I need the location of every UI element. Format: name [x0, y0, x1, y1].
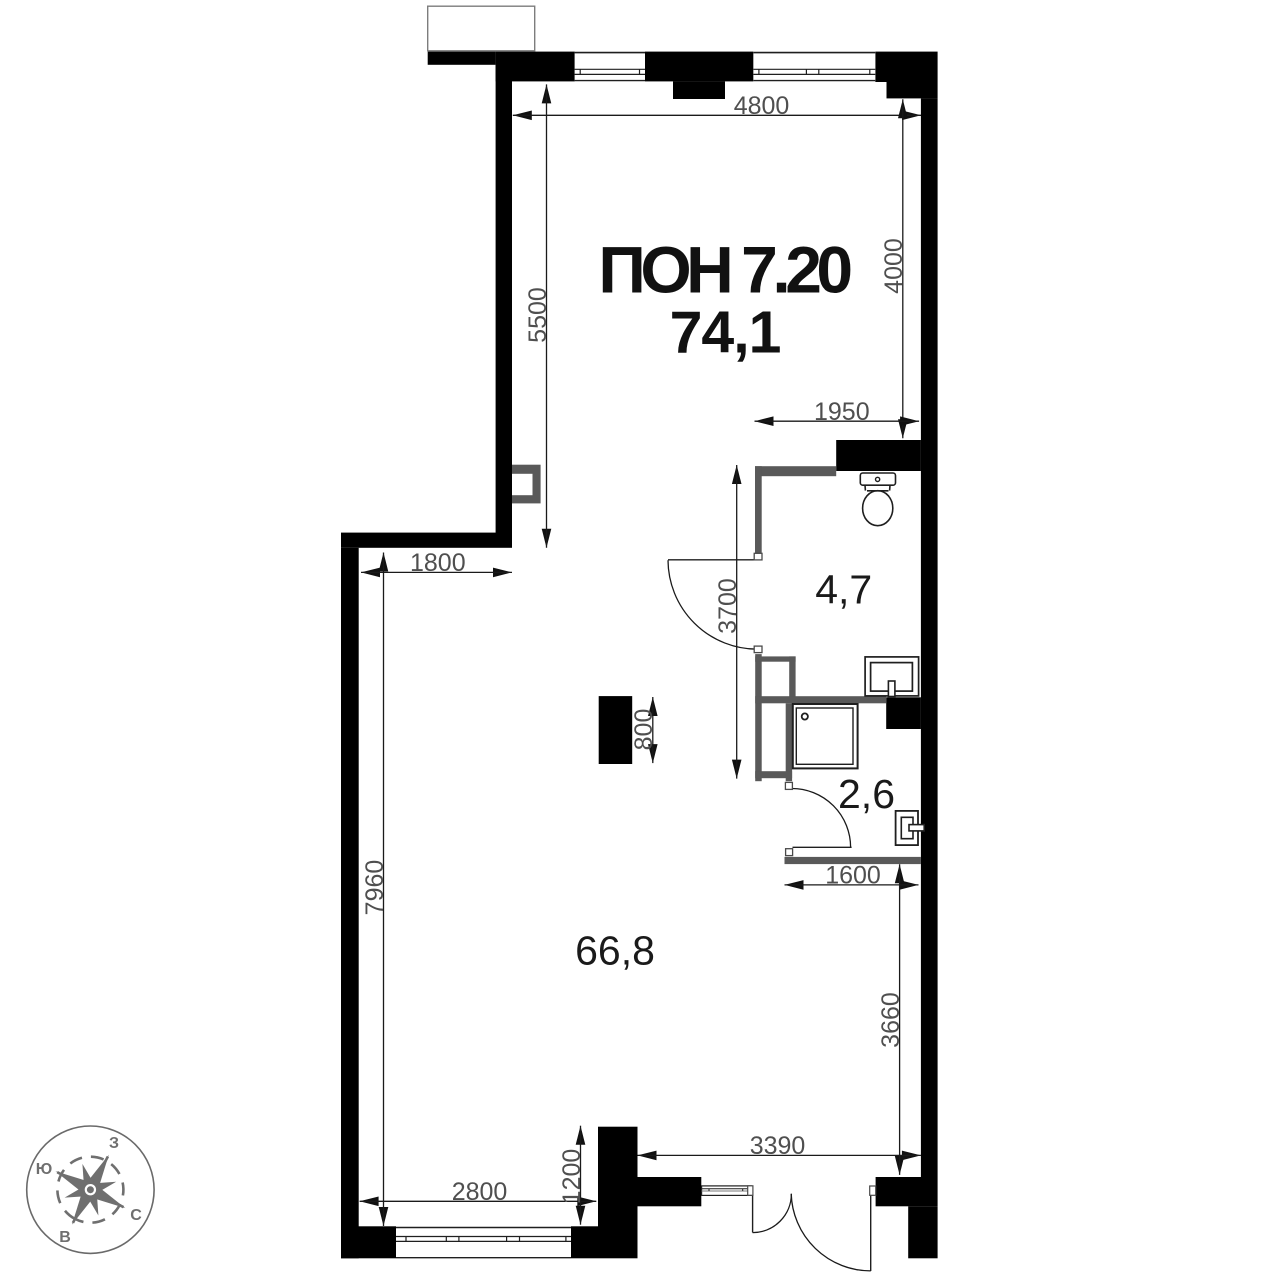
svg-text:3390: 3390 [750, 1132, 806, 1160]
svg-text:5500: 5500 [524, 287, 552, 343]
svg-text:4800: 4800 [734, 92, 790, 120]
svg-text:66,8: 66,8 [575, 928, 655, 974]
svg-text:74,1: 74,1 [670, 300, 781, 366]
svg-text:З: З [109, 1135, 119, 1152]
svg-text:В: В [59, 1229, 71, 1246]
svg-text:4000: 4000 [880, 238, 908, 294]
svg-text:2,6: 2,6 [838, 771, 895, 817]
svg-text:1200: 1200 [558, 1149, 586, 1205]
svg-text:3660: 3660 [877, 992, 905, 1048]
svg-text:ПОН 7.20: ПОН 7.20 [598, 233, 850, 307]
svg-text:1600: 1600 [825, 862, 881, 890]
svg-text:2800: 2800 [452, 1178, 508, 1206]
svg-text:Ю: Ю [36, 1161, 53, 1178]
svg-text:800: 800 [630, 709, 658, 751]
svg-text:7960: 7960 [361, 860, 389, 916]
svg-text:1800: 1800 [410, 549, 466, 577]
svg-text:1950: 1950 [814, 398, 870, 426]
svg-text:3700: 3700 [714, 578, 742, 634]
svg-text:4,7: 4,7 [815, 567, 872, 613]
svg-text:С: С [130, 1207, 142, 1224]
